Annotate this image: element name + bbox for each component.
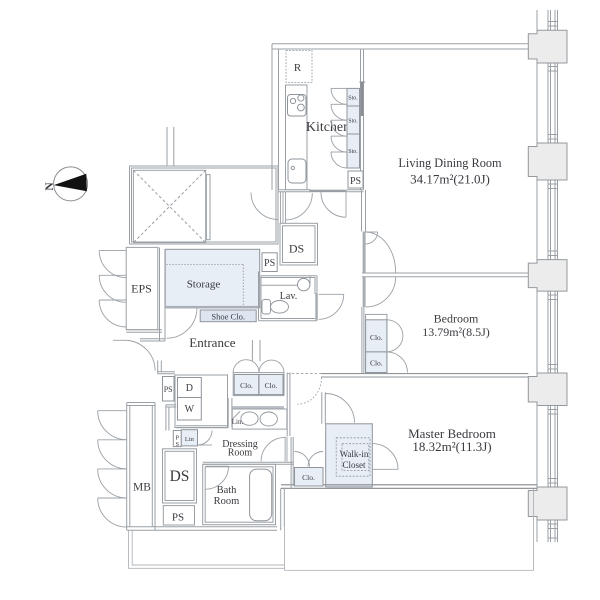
svg-text:Living Dining Room: Living Dining Room bbox=[398, 156, 502, 170]
svg-text:Bath: Bath bbox=[217, 485, 238, 496]
svg-text:Lin.: Lin. bbox=[232, 418, 244, 426]
svg-text:Bedroom: Bedroom bbox=[434, 312, 479, 326]
svg-text:N: N bbox=[44, 182, 56, 191]
svg-text:R: R bbox=[294, 62, 302, 74]
svg-text:Closet: Closet bbox=[342, 460, 366, 470]
svg-text:18.32m²(11.3J): 18.32m²(11.3J) bbox=[412, 439, 491, 454]
svg-text:Clo.: Clo. bbox=[240, 381, 253, 390]
svg-text:Entrance: Entrance bbox=[189, 335, 235, 350]
svg-text:Kitchen: Kitchen bbox=[306, 120, 350, 135]
svg-text:Sto.: Sto. bbox=[348, 119, 358, 125]
svg-text:S: S bbox=[175, 441, 179, 448]
svg-text:PS: PS bbox=[350, 176, 361, 187]
svg-text:MB: MB bbox=[133, 482, 151, 494]
svg-text:13.79m²(8.5J): 13.79m²(8.5J) bbox=[422, 325, 490, 339]
svg-text:Clo.: Clo. bbox=[265, 381, 278, 390]
svg-text:Room: Room bbox=[228, 448, 253, 459]
svg-text:PS: PS bbox=[264, 258, 275, 269]
svg-text:Storage: Storage bbox=[187, 279, 221, 291]
svg-text:Clo.: Clo. bbox=[370, 359, 383, 368]
svg-text:DS: DS bbox=[289, 242, 304, 256]
svg-text:EPS: EPS bbox=[131, 282, 152, 296]
svg-text:Shoe Clo.: Shoe Clo. bbox=[211, 312, 245, 322]
svg-text:Walk-in: Walk-in bbox=[340, 449, 369, 459]
svg-text:Clo.: Clo. bbox=[370, 333, 383, 342]
svg-text:Clo.: Clo. bbox=[302, 473, 315, 482]
svg-text:Room: Room bbox=[214, 496, 240, 507]
svg-text:W: W bbox=[185, 404, 195, 415]
svg-text:Lin: Lin bbox=[185, 436, 195, 443]
svg-text:PS: PS bbox=[172, 512, 184, 524]
svg-text:D: D bbox=[186, 383, 193, 394]
svg-text:Lav.: Lav. bbox=[280, 291, 297, 302]
svg-text:Sto.: Sto. bbox=[348, 96, 358, 102]
svg-text:34.17m²(21.0J): 34.17m²(21.0J) bbox=[410, 172, 490, 187]
svg-text:PS: PS bbox=[164, 385, 173, 394]
svg-text:DS: DS bbox=[170, 468, 190, 485]
svg-text:Sto.: Sto. bbox=[348, 149, 358, 155]
